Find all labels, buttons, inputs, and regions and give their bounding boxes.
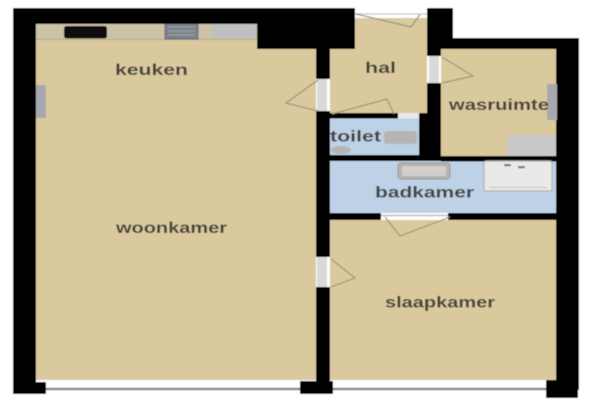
svg-text:woonkamer: woonkamer [115, 220, 227, 237]
svg-text:badkamer: badkamer [375, 185, 474, 202]
svg-text:toilet: toilet [330, 129, 382, 146]
svg-text:slaapkamer: slaapkamer [385, 295, 495, 312]
svg-text:wasruimte: wasruimte [448, 97, 549, 114]
svg-text:keuken: keuken [115, 62, 188, 79]
svg-text:hal: hal [365, 60, 396, 77]
